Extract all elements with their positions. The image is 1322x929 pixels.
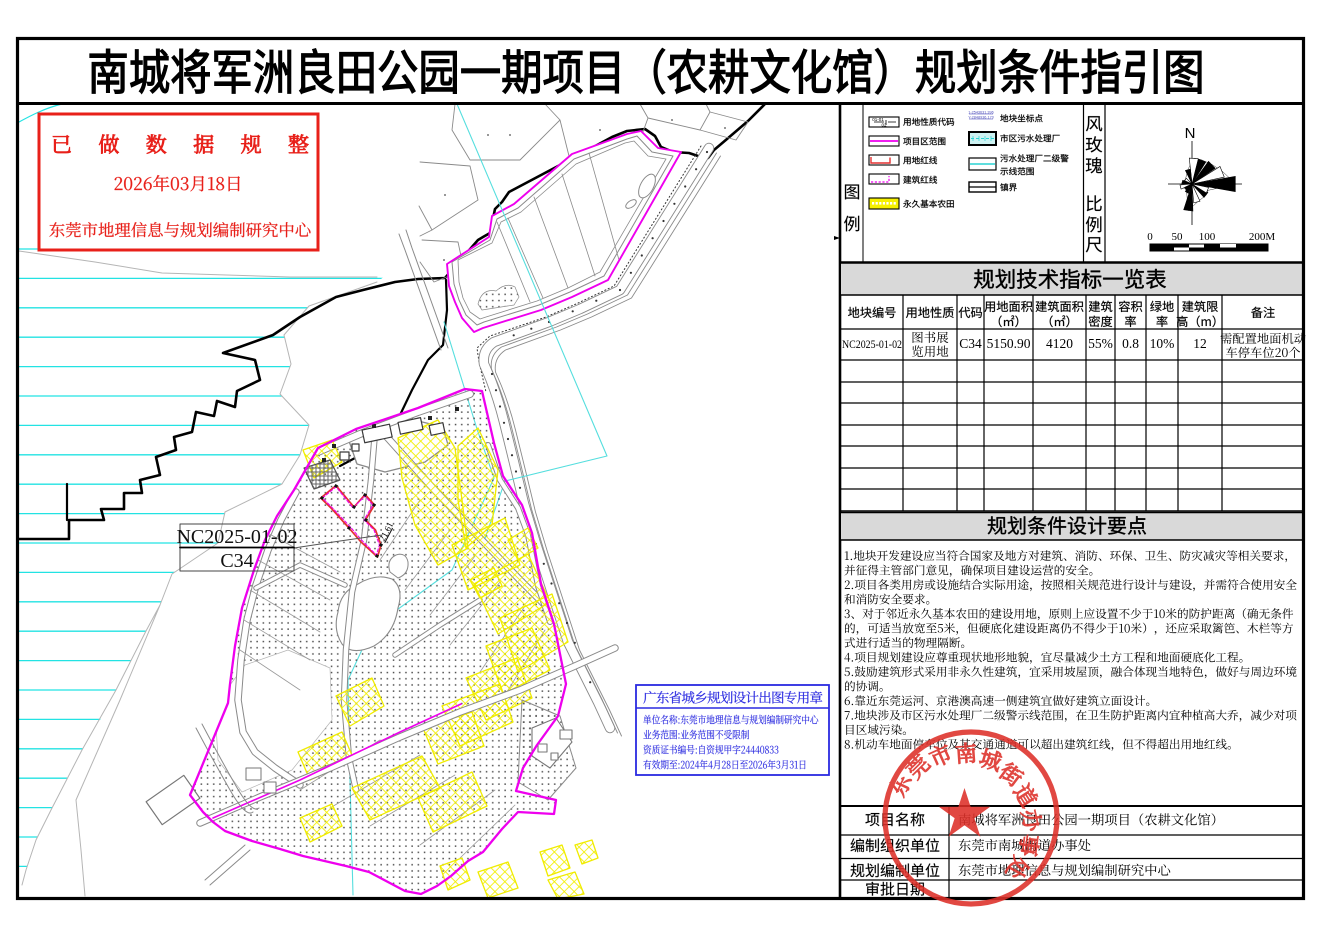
svg-text:0.8: 0.8 [1122,336,1139,351]
svg-text:C34: C34 [220,550,253,572]
svg-text:02: 02 [881,123,887,128]
svg-text:200M: 200M [1249,231,1276,243]
svg-text:5150.90: 5150.90 [987,336,1031,351]
svg-text:10%: 10% [1150,336,1175,351]
svg-text:4120: 4120 [1046,336,1073,351]
svg-text:55%: 55% [1088,336,1113,351]
svg-text:100: 100 [1199,231,1216,243]
svg-text:1-2543631.396: 1-2543631.396 [968,111,994,115]
svg-text:Y-2848936.170: Y-2848936.170 [968,116,994,120]
svg-text:N: N [1185,125,1196,142]
svg-text:C34: C34 [959,336,982,351]
svg-text:01-01: 01-01 [872,117,884,122]
svg-text:0: 0 [1147,231,1153,243]
svg-text:12: 12 [1193,336,1207,351]
svg-text:NC2025-01-02: NC2025-01-02 [842,339,902,351]
svg-text:NC2025-01-02: NC2025-01-02 [176,526,297,548]
svg-text:50: 50 [1172,231,1184,243]
